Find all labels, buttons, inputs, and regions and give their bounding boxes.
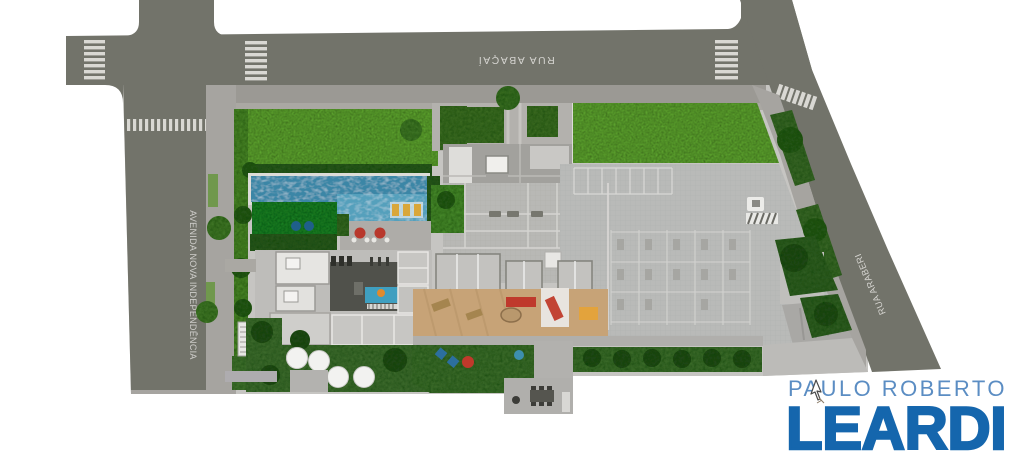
svg-text:AVENIDA NOVA INDEPENDÊNCIA: AVENIDA NOVA INDEPENDÊNCIA xyxy=(188,210,198,360)
svg-text:LEARDI: LEARDI xyxy=(786,395,1006,462)
svg-text:RUA ABAÇAÍ: RUA ABAÇAÍ xyxy=(477,54,554,67)
